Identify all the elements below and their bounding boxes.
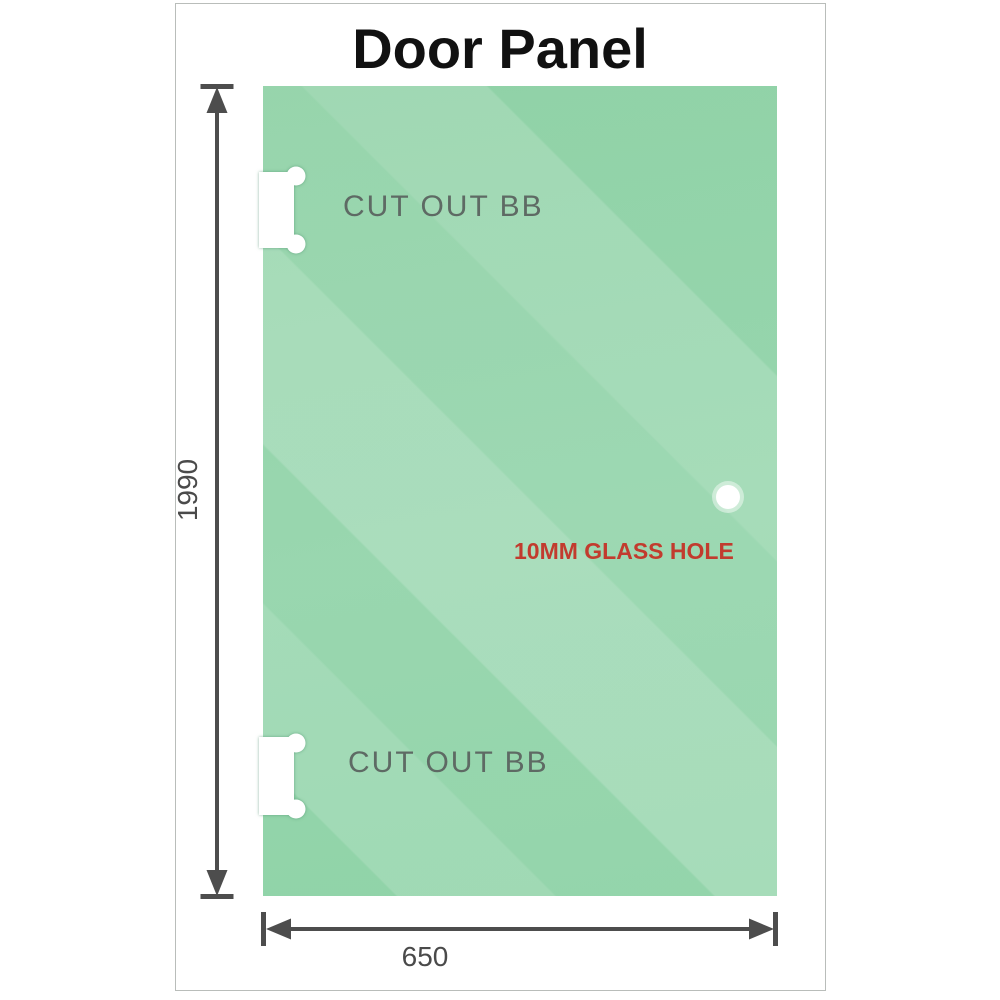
cutout-label-bottom: CUT OUT BB [348,746,549,780]
cutout-lobe-bottom [287,800,306,819]
height-dimension-value: 1990 [172,440,204,540]
width-dimension-value: 650 [375,941,475,973]
cutout-lobe-top [287,734,306,753]
page-title: Door Panel [175,16,825,81]
glass-hole-label: 10MM GLASS HOLE [514,538,734,565]
door-panel-diagram: Door Panel CUT OUT BB CUT OUT BB 10MM GL… [0,0,1000,1000]
cutout-notch [259,172,294,248]
cutout-label-top: CUT OUT BB [343,190,544,224]
cutout-lobe-bottom [287,235,306,254]
hinge-cutout-top [263,166,309,254]
cutout-lobe-top [287,167,306,186]
hinge-cutout-bottom [263,731,309,819]
glass-hole [716,485,740,509]
